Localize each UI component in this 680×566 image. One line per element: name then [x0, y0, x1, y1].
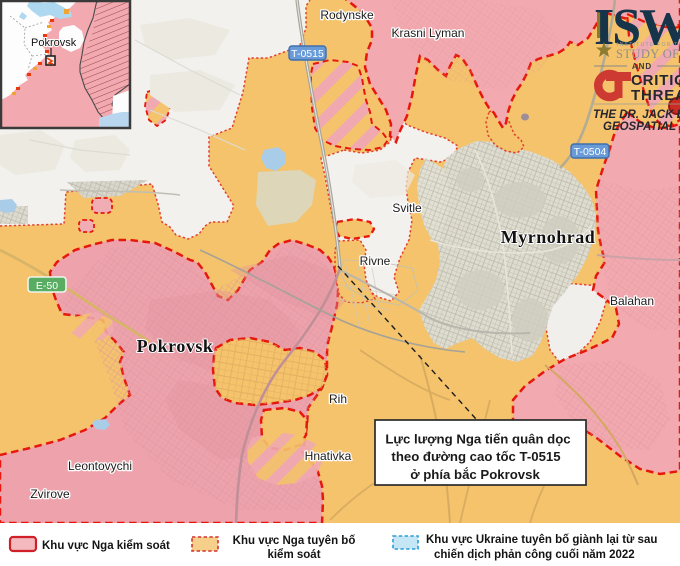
svg-text:Hnativka: Hnativka — [305, 449, 352, 463]
svg-text:ở phía bắc Pokrovsk: ở phía bắc Pokrovsk — [410, 467, 540, 482]
svg-text:THE DR. JACK LONDON: THE DR. JACK LONDON — [593, 109, 680, 121]
svg-text:theo đường cao tốc T-0515: theo đường cao tốc T-0515 — [391, 449, 560, 464]
svg-text:Rivne: Rivne — [360, 254, 391, 268]
svg-text:Zvirove: Zvirove — [30, 487, 70, 501]
svg-text:AND: AND — [632, 62, 652, 71]
svg-text:Khu vực Nga tuyên bố: Khu vực Nga tuyên bố — [233, 535, 356, 547]
svg-text:T-0515: T-0515 — [291, 48, 324, 60]
svg-text:GEOSPATIAL FUND: GEOSPATIAL FUND — [603, 121, 680, 133]
svg-text:chiến dịch phản công cuối năm: chiến dịch phản công cuối năm 2022 — [434, 549, 635, 561]
svg-text:Rih: Rih — [329, 392, 347, 406]
svg-text:Leontovychi: Leontovychi — [68, 459, 132, 473]
svg-text:Khu vực Ukraine tuyên bố giành: Khu vực Ukraine tuyên bố giành lại từ sa… — [426, 534, 657, 546]
svg-text:kiểm soát: kiểm soát — [267, 549, 320, 561]
svg-text:T-0504: T-0504 — [574, 146, 607, 158]
svg-text:Khu vực Nga kiểm soát: Khu vực Nga kiểm soát — [42, 540, 170, 552]
svg-text:Lực lượng Nga tiến quân dọc: Lực lượng Nga tiến quân dọc — [385, 432, 570, 447]
svg-text:Pokrovsk: Pokrovsk — [31, 37, 77, 49]
svg-text:Rodynske: Rodynske — [320, 8, 374, 22]
svg-text:THREATS: THREATS — [631, 87, 680, 104]
svg-text:Balahan: Balahan — [610, 294, 654, 308]
svg-text:STUDY OF WAR: STUDY OF WAR — [616, 47, 680, 61]
svg-text:Myrnohrad: Myrnohrad — [501, 227, 596, 247]
svg-text:E-50: E-50 — [36, 280, 58, 292]
svg-text:Pokrovsk: Pokrovsk — [137, 336, 214, 356]
svg-text:Krasni Lyman: Krasni Lyman — [392, 26, 465, 40]
svg-text:Svitle: Svitle — [392, 201, 422, 215]
